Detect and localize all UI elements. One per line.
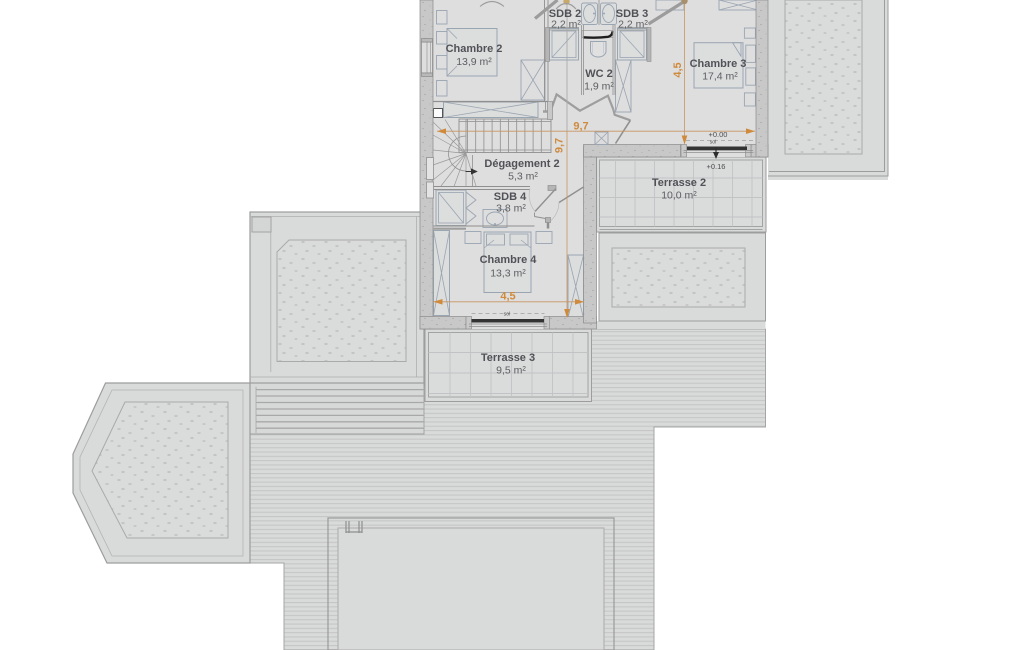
- svg-text:Chambre 4: Chambre 4: [480, 254, 538, 266]
- svg-text:4,5: 4,5: [500, 291, 515, 303]
- svg-text:13,9 m²: 13,9 m²: [456, 56, 492, 68]
- svg-text:SDB 4: SDB 4: [494, 191, 527, 203]
- svg-text:5,3 m²: 5,3 m²: [508, 171, 538, 183]
- svg-text:10,0 m²: 10,0 m²: [661, 190, 697, 202]
- svg-text:2,2 m²: 2,2 m²: [618, 19, 648, 31]
- svg-text:1,9 m²: 1,9 m²: [584, 81, 614, 93]
- svg-text:13,3 m²: 13,3 m²: [490, 268, 526, 280]
- svg-text:sol: sol: [504, 312, 510, 318]
- svg-text:4,5: 4,5: [672, 62, 684, 77]
- svg-text:WC 2: WC 2: [585, 68, 613, 80]
- svg-text:Chambre 2: Chambre 2: [446, 43, 503, 55]
- svg-text:Chambre 3: Chambre 3: [690, 58, 747, 70]
- svg-text:+0.00: +0.00: [709, 130, 728, 139]
- svg-text:3,8 m²: 3,8 m²: [496, 203, 526, 215]
- svg-text:Dégagement 2: Dégagement 2: [484, 158, 559, 170]
- svg-text:+0.16: +0.16: [707, 162, 726, 171]
- svg-text:17,4 m²: 17,4 m²: [702, 71, 738, 83]
- svg-text:Terrasse 3: Terrasse 3: [481, 352, 535, 364]
- svg-text:2,2 m²: 2,2 m²: [551, 19, 581, 31]
- svg-text:9,7: 9,7: [554, 138, 566, 153]
- svg-text:sol: sol: [710, 140, 716, 146]
- svg-text:9,5 m²: 9,5 m²: [496, 365, 526, 377]
- svg-text:Terrasse 2: Terrasse 2: [652, 177, 706, 189]
- svg-text:9,7: 9,7: [573, 120, 588, 132]
